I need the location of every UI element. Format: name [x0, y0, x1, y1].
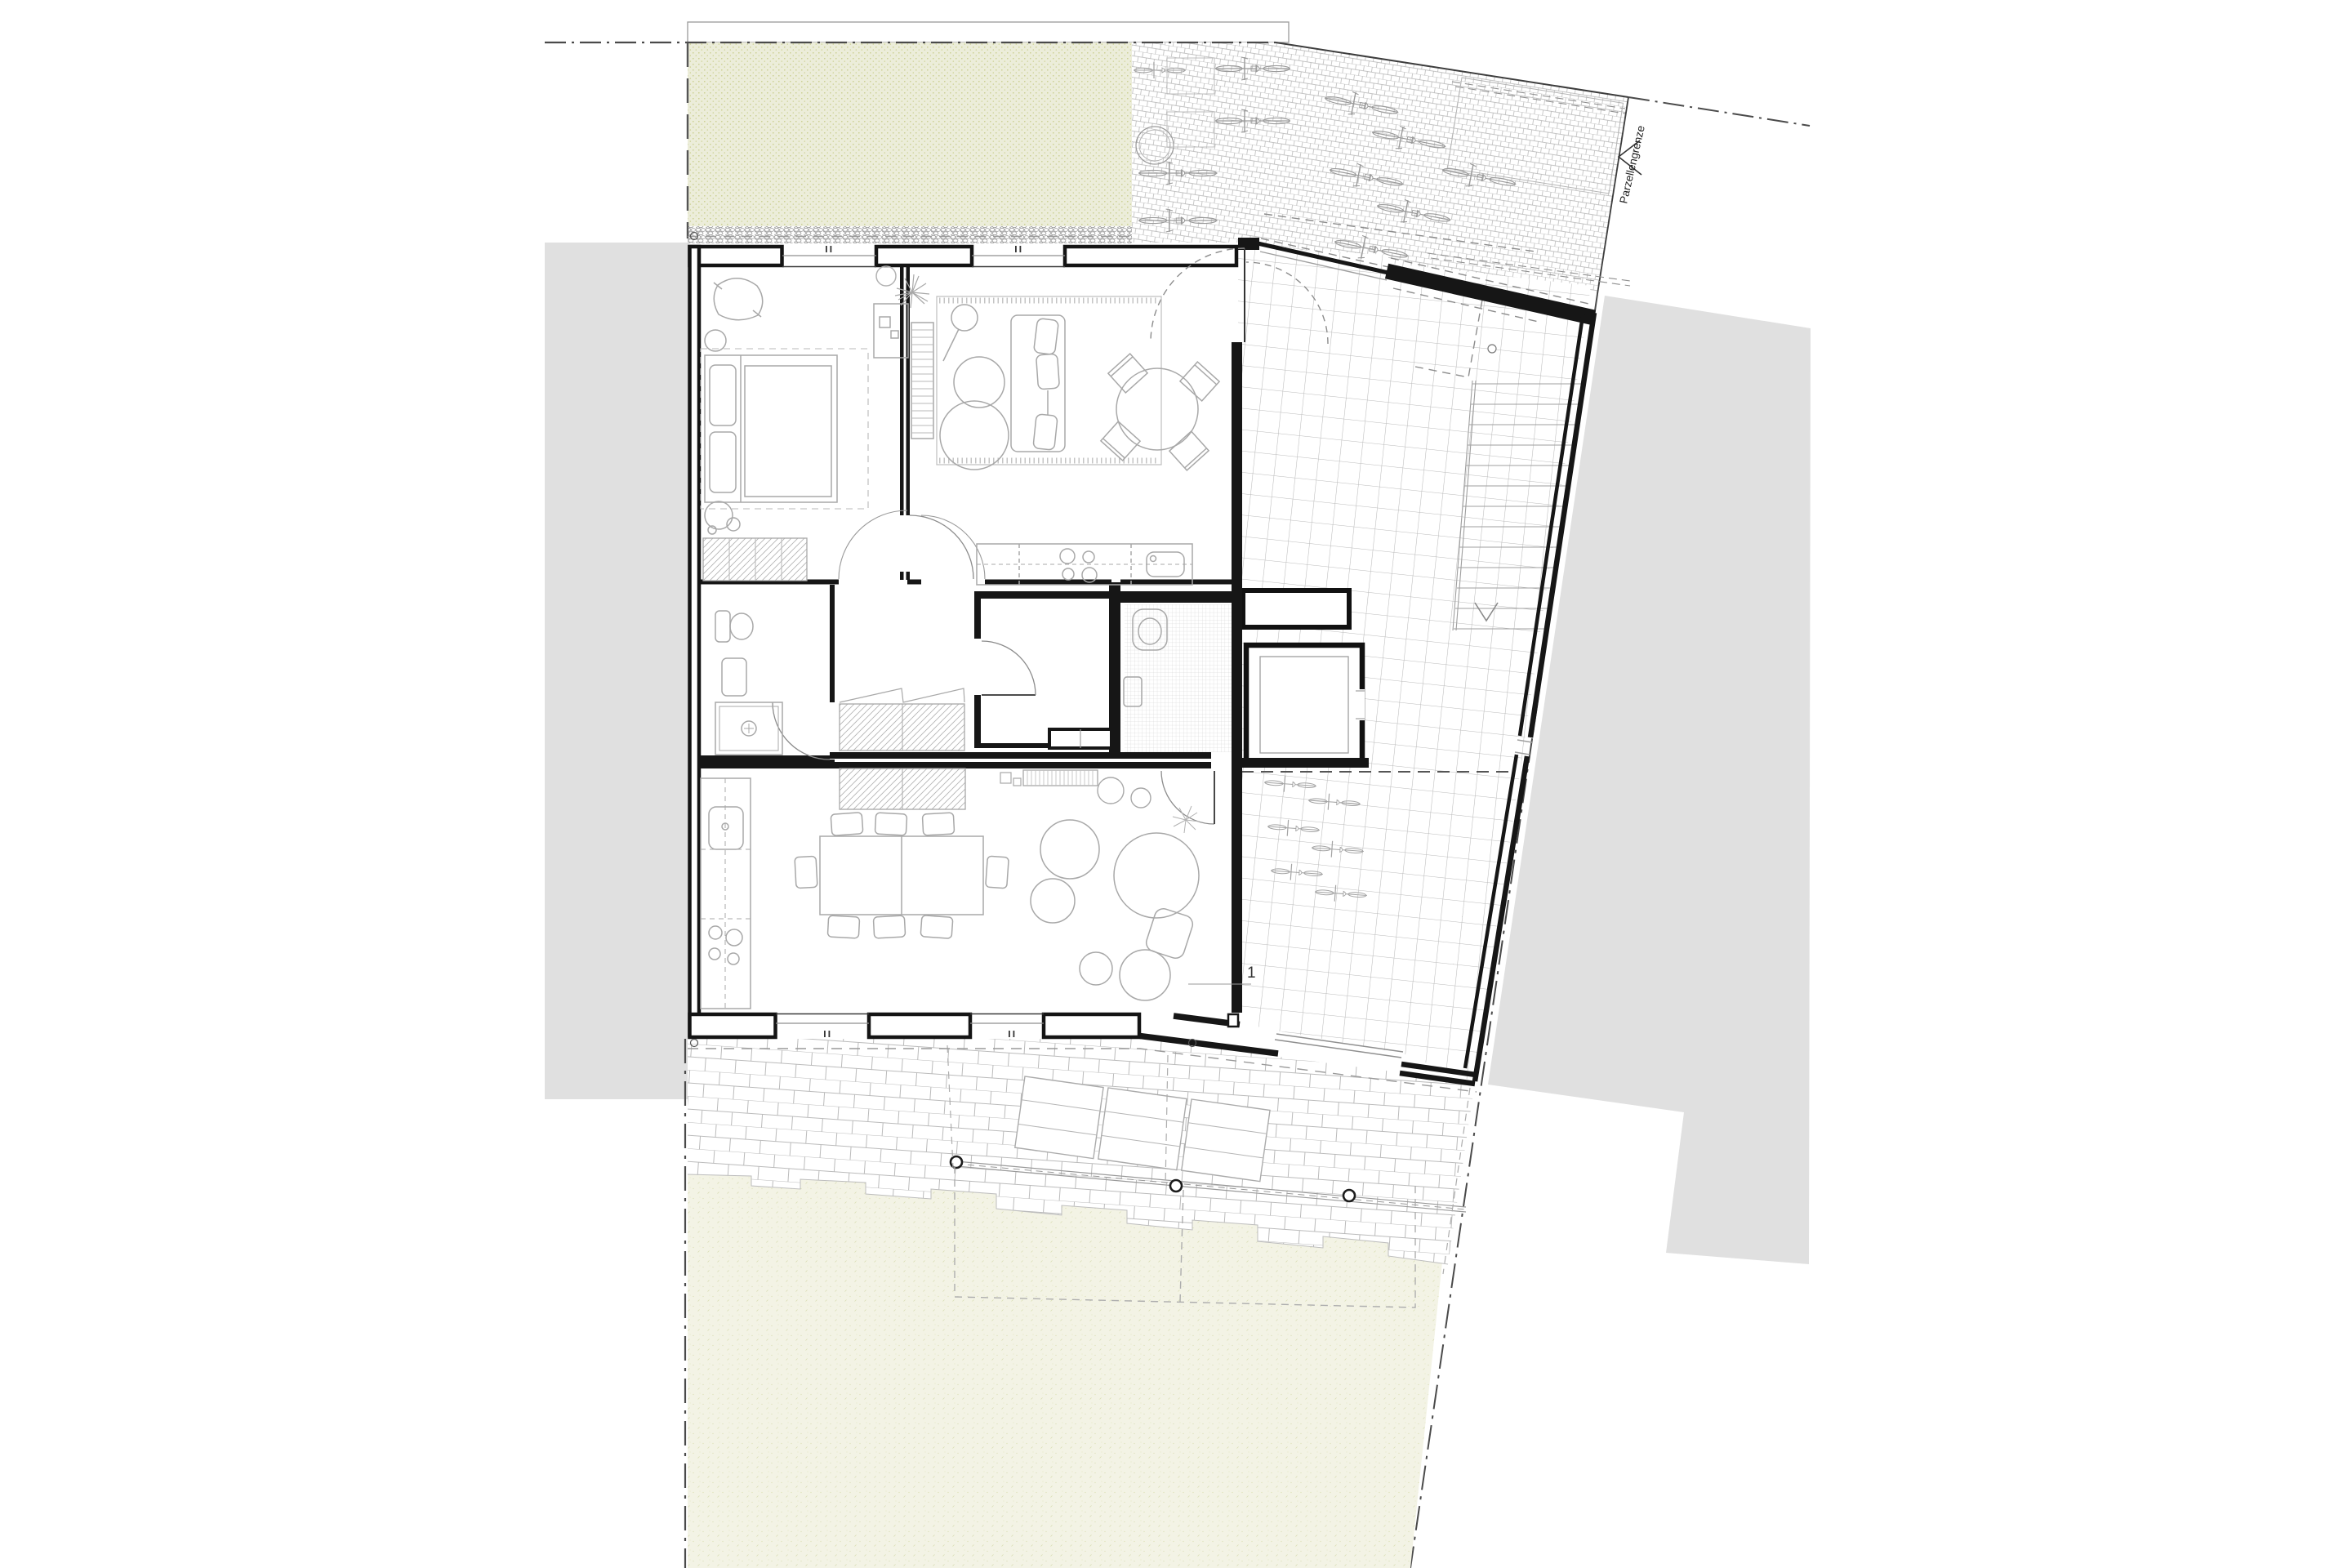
svg-text:1: 1 — [1247, 964, 1256, 982]
